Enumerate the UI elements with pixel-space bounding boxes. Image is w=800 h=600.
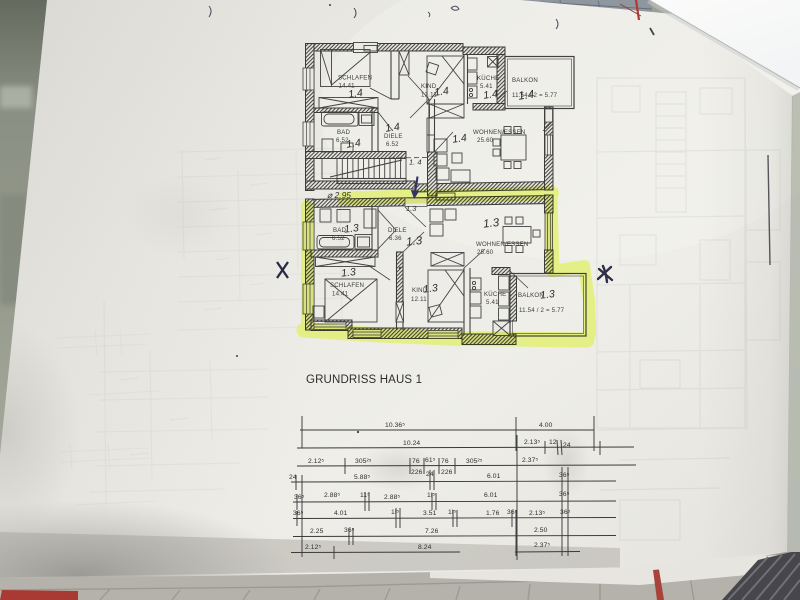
svg-text:2.88⁵: 2.88⁵ [384,494,400,501]
svg-text:2.37⁵: 2.37⁵ [522,457,538,464]
svg-text:1l⁵: 1l⁵ [391,509,399,516]
svg-text:25.60: 25.60 [477,137,494,144]
svg-text:36⁵: 36⁵ [294,494,305,501]
svg-text:6.52: 6.52 [332,235,345,242]
svg-text:2.50: 2.50 [534,527,548,534]
svg-text:1.76: 1.76 [486,510,500,517]
svg-text:25.60: 25.60 [477,249,494,256]
svg-text:6.52: 6.52 [386,141,399,148]
svg-text:11⁵: 11⁵ [360,492,370,499]
svg-text:2.88⁵: 2.88⁵ [324,492,340,499]
svg-text:305²⁵: 305²⁵ [466,458,483,465]
svg-text:36⁵: 36⁵ [507,509,518,516]
svg-text:36⁵: 36⁵ [344,527,355,534]
svg-text:1.3: 1.3 [406,235,424,249]
svg-text:76: 76 [441,458,449,465]
svg-text:1.3: 1.3 [341,266,357,279]
svg-text:WOHNEN/ESSEN: WOHNEN/ESSEN [476,241,529,248]
svg-text:2.25: 2.25 [310,528,324,535]
svg-text:10.24: 10.24 [403,440,420,447]
svg-text:DIELE: DIELE [388,227,407,234]
svg-text:1.4: 1.4 [385,121,401,135]
svg-text:8.24: 8.24 [418,544,432,551]
svg-text:2.13⁵: 2.13⁵ [529,510,545,517]
svg-text:4.00: 4.00 [539,422,553,429]
svg-text:11.54 / 2 = 5.77: 11.54 / 2 = 5.77 [519,307,565,314]
svg-text:6.01: 6.01 [487,473,501,480]
svg-text:10.36⁵: 10.36⁵ [385,422,405,429]
svg-text:1.3: 1.3 [406,204,417,213]
svg-text:SCHLAFEN: SCHLAFEN [330,282,364,289]
svg-text:36⁵: 36⁵ [293,510,304,517]
svg-text:1.3: 1.3 [540,288,556,301]
svg-text:2.37⁵: 2.37⁵ [534,542,550,549]
svg-text:24: 24 [563,442,571,449]
svg-text:1.4: 1.4 [452,132,468,146]
svg-text:BALKON: BALKON [512,77,538,84]
svg-text:WOHNEN/ESSEN: WOHNEN/ESSEN [473,129,526,136]
svg-text:226: 226 [411,469,423,476]
svg-text:36⁵: 36⁵ [559,491,570,498]
svg-text:61⁵: 61⁵ [425,457,436,464]
svg-text:5.41: 5.41 [486,299,499,306]
svg-text:GRUNDRISS HAUS 1: GRUNDRISS HAUS 1 [306,374,422,386]
svg-text:1.3: 1.3 [423,282,439,295]
svg-text:1l⁵: 1l⁵ [448,509,456,516]
svg-text:KÜCHE: KÜCHE [484,291,506,298]
svg-text:⌀ 2.95: ⌀ 2.95 [327,190,351,200]
svg-text:24: 24 [289,474,297,481]
svg-text:76: 76 [412,458,420,465]
svg-text:1.4: 1.4 [434,85,450,99]
svg-text:226: 226 [441,469,453,476]
svg-text:1. 4: 1. 4 [409,158,422,167]
svg-text:2.12⁵: 2.12⁵ [308,458,324,465]
svg-text:36⁵: 36⁵ [559,472,570,479]
svg-text:12.11: 12.11 [411,296,427,303]
svg-text:KÜCHE: KÜCHE [477,75,499,82]
svg-text:1.4: 1.4 [518,89,536,103]
svg-text:14.41: 14.41 [332,291,349,298]
svg-text:1l⁵: 1l⁵ [427,492,435,499]
svg-text:1.4: 1.4 [483,88,499,102]
svg-text:BAD: BAD [337,129,351,136]
svg-text:5.88⁵: 5.88⁵ [354,474,370,481]
svg-text:2.12⁵: 2.12⁵ [305,544,321,551]
svg-text:6.01: 6.01 [484,492,498,499]
svg-text:SCHLAFEN: SCHLAFEN [338,75,372,82]
svg-text:2.13⁵: 2.13⁵ [524,439,540,446]
svg-text:7.26: 7.26 [425,528,439,535]
svg-text:1.4: 1.4 [348,87,364,101]
svg-text:1.3: 1.3 [483,217,501,231]
svg-text:24: 24 [426,471,434,478]
svg-text:1.3: 1.3 [344,222,360,235]
svg-text:36⁵: 36⁵ [560,509,571,516]
svg-text:3.51: 3.51 [423,510,437,517]
svg-text:305²⁵: 305²⁵ [355,458,372,465]
svg-text:6.36: 6.36 [389,235,402,242]
svg-text:4.01: 4.01 [334,510,348,517]
svg-text:1.4: 1.4 [346,137,362,151]
svg-text:12: 12 [549,439,557,446]
